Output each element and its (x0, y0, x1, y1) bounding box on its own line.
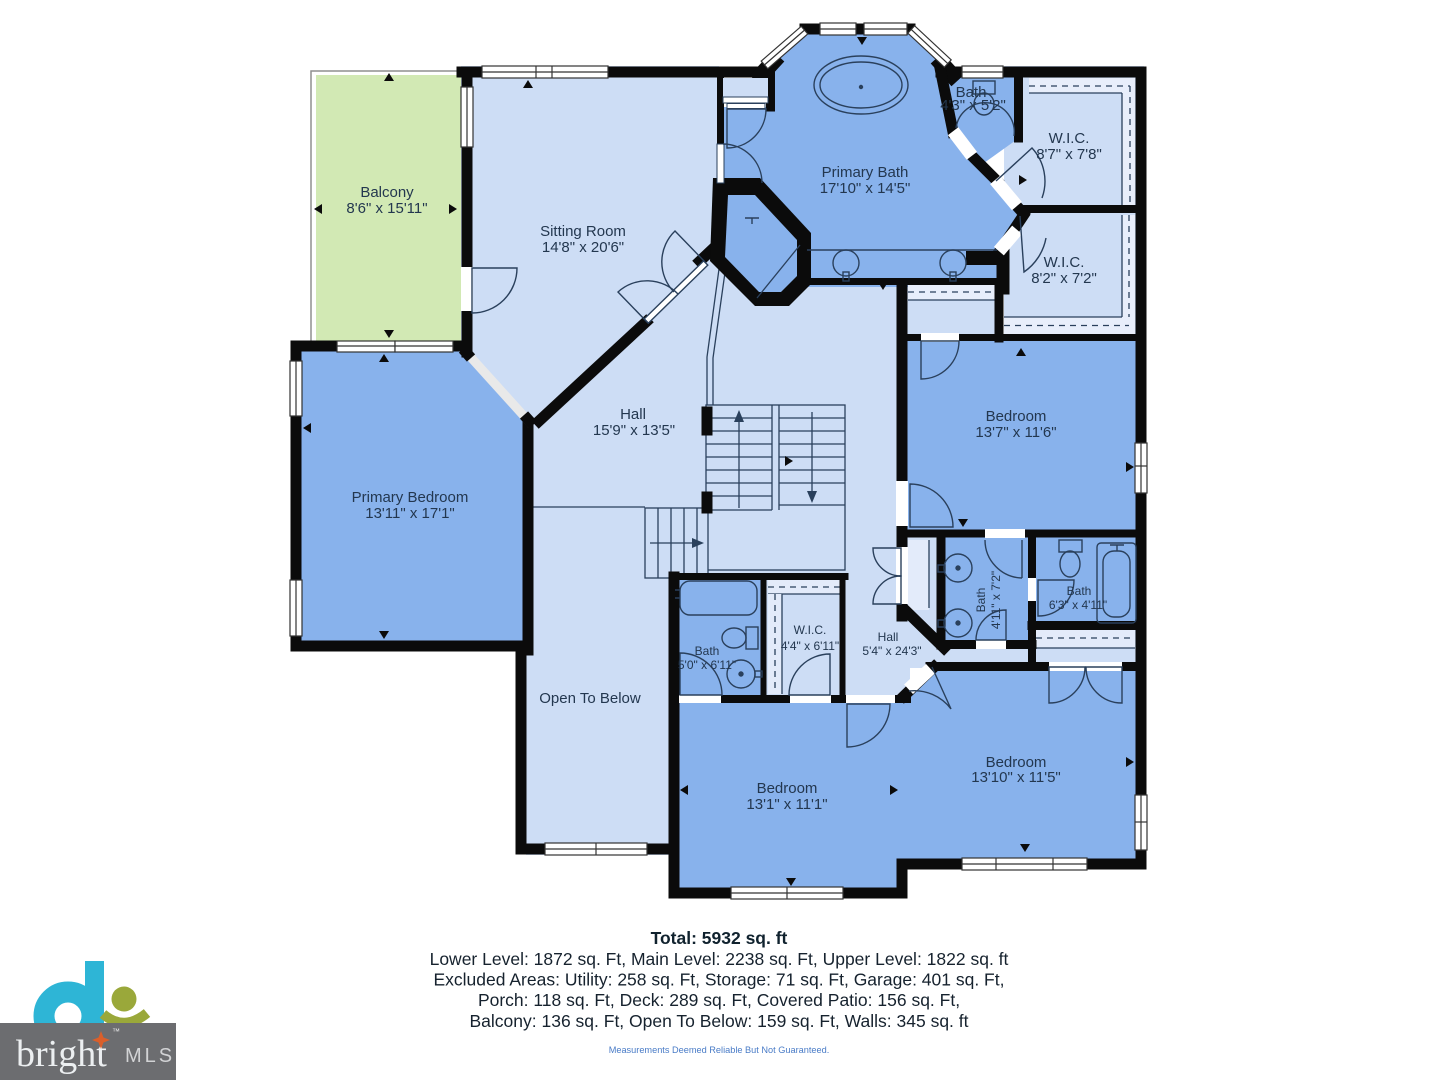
svg-text:Sitting Room: Sitting Room (540, 223, 626, 240)
svg-text:6'3" x 4'11": 6'3" x 4'11" (1049, 598, 1107, 612)
svg-text:5'4" x 24'3": 5'4" x 24'3" (862, 644, 921, 658)
svg-text:8'7" x 7'8": 8'7" x 7'8" (1036, 146, 1102, 163)
svg-text:14'8" x 20'6": 14'8" x 20'6" (542, 239, 624, 256)
svg-text:Bedroom: Bedroom (986, 408, 1047, 425)
svg-text:Lower Level: 1872 sq. Ft, Main: Lower Level: 1872 sq. Ft, Main Level: 22… (430, 949, 1009, 969)
svg-text:15'9" x 13'5": 15'9" x 13'5" (593, 422, 675, 439)
svg-text:Primary Bedroom: Primary Bedroom (352, 489, 469, 506)
svg-text:Bath: Bath (695, 644, 720, 658)
svg-text:Primary Bath: Primary Bath (822, 164, 909, 181)
svg-text:Excluded Areas: Utility: 258 s: Excluded Areas: Utility: 258 sq. Ft, Sto… (434, 970, 1005, 990)
svg-text:™: ™ (112, 1027, 120, 1036)
svg-text:Bath: Bath (1067, 584, 1092, 598)
svg-text:W.I.C.: W.I.C. (1049, 130, 1090, 147)
svg-text:Hall: Hall (878, 630, 899, 644)
svg-text:Measurements Deemed Reliable B: Measurements Deemed Reliable But Not Gua… (609, 1045, 830, 1055)
svg-text:13'10" x 11'5": 13'10" x 11'5" (971, 769, 1061, 786)
svg-text:Bath: Bath (974, 588, 988, 613)
svg-text:Balcony: 136 sq. Ft, Open To B: Balcony: 136 sq. Ft, Open To Below: 159 … (470, 1011, 969, 1031)
svg-text:Total: 5932 sq. ft: Total: 5932 sq. ft (651, 928, 788, 948)
svg-text:bright: bright (16, 1033, 107, 1075)
svg-text:13'1" x 11'1": 13'1" x 11'1" (746, 796, 827, 813)
svg-text:4'11" x 7'2": 4'11" x 7'2" (989, 571, 1003, 629)
svg-text:4'4" x 6'11": 4'4" x 6'11" (781, 639, 839, 653)
svg-text:Porch: 118 sq. Ft, Deck: 289 s: Porch: 118 sq. Ft, Deck: 289 sq. Ft, Cov… (478, 990, 960, 1010)
svg-text:4'3" x 5'2": 4'3" x 5'2" (940, 97, 1006, 114)
svg-text:13'7" x 11'6": 13'7" x 11'6" (975, 424, 1056, 441)
svg-text:W.I.C.: W.I.C. (794, 623, 827, 637)
svg-text:MLS: MLS (125, 1045, 175, 1067)
svg-text:5'0" x 6'11": 5'0" x 6'11" (678, 658, 736, 672)
svg-text:Balcony: Balcony (360, 184, 414, 201)
svg-text:8'6" x 15'11": 8'6" x 15'11" (346, 200, 427, 217)
svg-text:8'2" x 7'2": 8'2" x 7'2" (1031, 270, 1097, 287)
svg-text:W.I.C.: W.I.C. (1044, 254, 1085, 271)
svg-text:17'10" x 14'5": 17'10" x 14'5" (820, 180, 911, 197)
svg-text:Bedroom: Bedroom (757, 780, 818, 797)
svg-text:Open To Below: Open To Below (539, 690, 641, 707)
svg-text:Hall: Hall (620, 406, 646, 423)
svg-text:13'11" x 17'1": 13'11" x 17'1" (365, 505, 455, 522)
